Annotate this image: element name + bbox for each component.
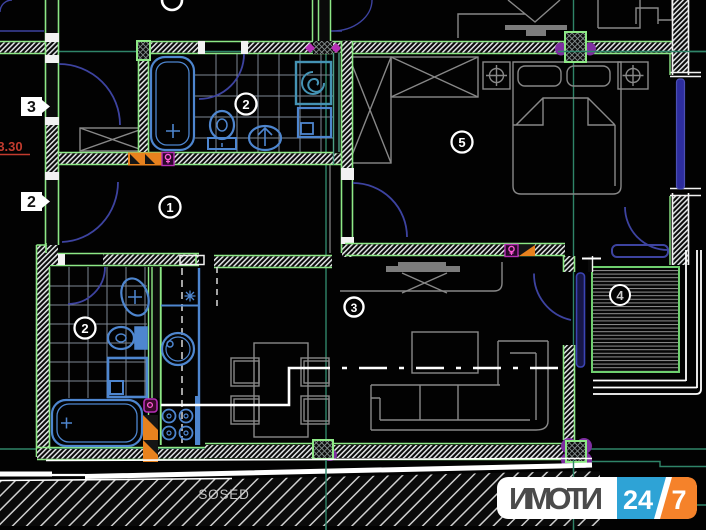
svg-text:2: 2 bbox=[27, 194, 36, 211]
svg-text:2: 2 bbox=[81, 321, 88, 336]
svg-text:7: 7 bbox=[671, 485, 686, 515]
svg-text:ИМОТИ: ИМОТИ bbox=[509, 481, 603, 516]
svg-text:1: 1 bbox=[166, 200, 173, 215]
svg-text:2: 2 bbox=[242, 97, 249, 112]
svg-text:3: 3 bbox=[351, 301, 358, 315]
svg-text:-3.30: -3.30 bbox=[0, 139, 23, 154]
svg-text:3: 3 bbox=[27, 99, 36, 116]
svg-text:5: 5 bbox=[458, 135, 465, 150]
svg-text:SOSED: SOSED bbox=[198, 487, 249, 502]
svg-text:4: 4 bbox=[616, 288, 624, 303]
svg-text:24: 24 bbox=[623, 485, 653, 515]
